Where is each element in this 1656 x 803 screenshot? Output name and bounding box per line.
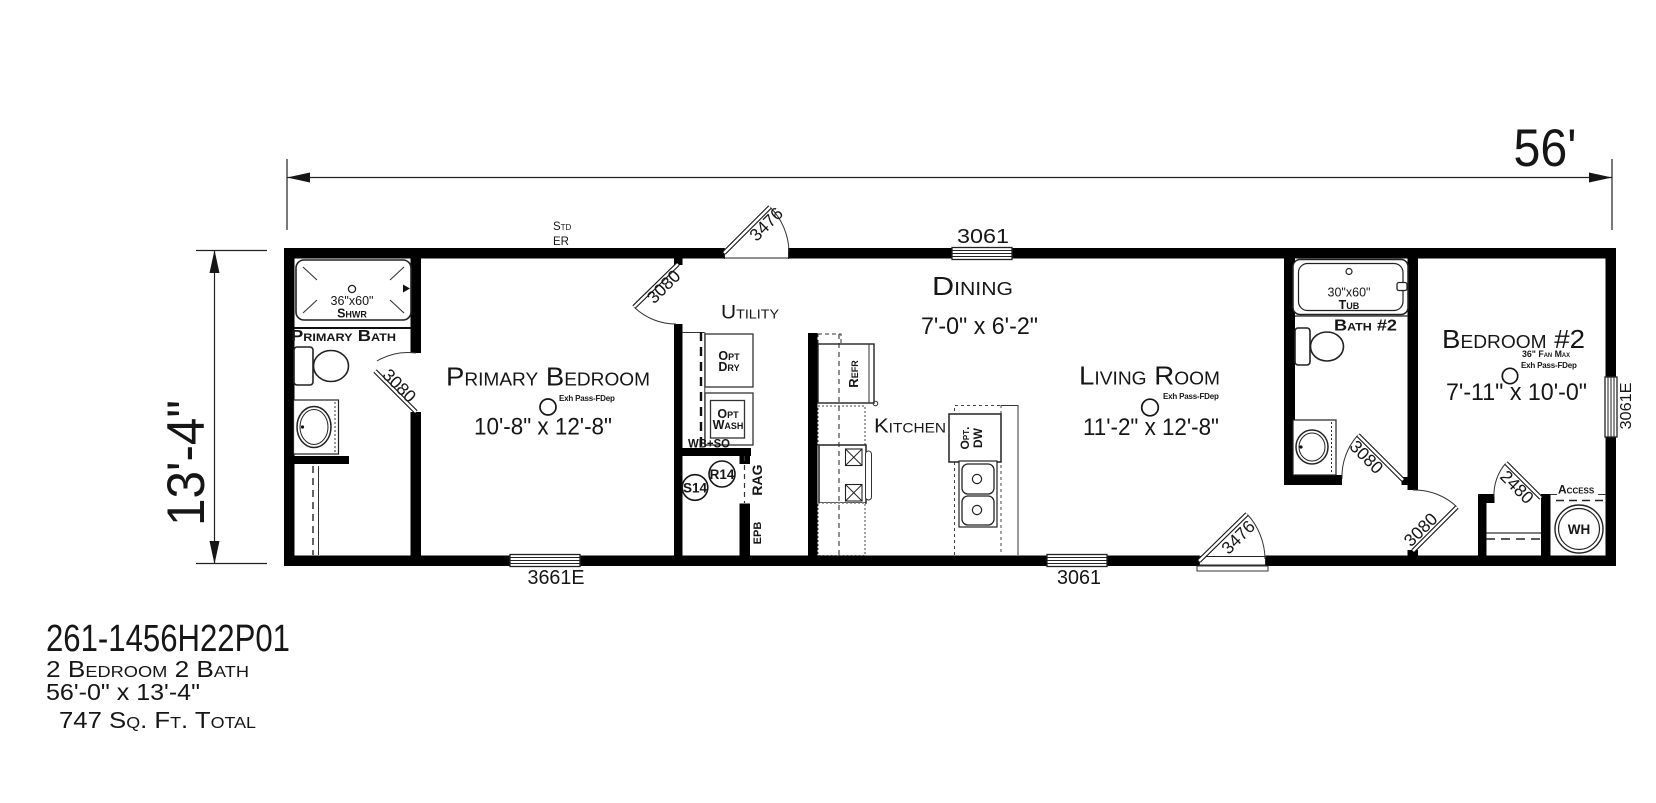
svg-text:11'-2" x 12'-8": 11'-2" x 12'-8" <box>1083 414 1219 441</box>
svg-text:3661E: 3661E <box>528 567 585 589</box>
svg-text:S14: S14 <box>683 481 708 496</box>
svg-text:3061: 3061 <box>957 226 1009 248</box>
svg-text:Exh Pass-FDep: Exh Pass-FDep <box>1163 392 1219 401</box>
svg-text:ER: ER <box>553 236 569 248</box>
svg-text:Utility: Utility <box>721 303 779 324</box>
svg-text:Refr: Refr <box>846 360 861 388</box>
svg-text:36" Fan Max: 36" Fan Max <box>1522 349 1570 359</box>
svg-text:10'-8" x 12'-8": 10'-8" x 12'-8" <box>474 414 612 441</box>
svg-text:Dry: Dry <box>718 360 739 374</box>
svg-text:Tub: Tub <box>1339 298 1360 312</box>
svg-text:3061E: 3061E <box>1618 383 1635 430</box>
svg-text:56': 56' <box>1514 119 1577 178</box>
svg-text:7'-11" x 10'-0": 7'-11" x 10'-0" <box>1446 379 1587 406</box>
svg-text:Primary Bath: Primary Bath <box>291 328 396 345</box>
svg-text:7'-0" x 6'-2": 7'-0" x 6'-2" <box>921 313 1038 340</box>
svg-text:261-1456H22P01: 261-1456H22P01 <box>46 618 290 660</box>
svg-text:Std: Std <box>553 221 572 233</box>
svg-text:3061: 3061 <box>1057 567 1101 589</box>
svg-text:Living Room: Living Room <box>1079 361 1220 391</box>
svg-text:Opt.: Opt. <box>958 427 972 450</box>
svg-text:Wash: Wash <box>713 418 744 432</box>
svg-text:Shwr: Shwr <box>337 307 367 321</box>
svg-text:Exh Pass-FDep: Exh Pass-FDep <box>559 394 615 403</box>
svg-text:WB+SO: WB+SO <box>688 439 730 451</box>
svg-text:Kitchen: Kitchen <box>874 416 946 438</box>
svg-text:WH: WH <box>1568 522 1591 537</box>
svg-text:Exh Pass-FDep: Exh Pass-FDep <box>1521 361 1577 370</box>
svg-text:RAG: RAG <box>749 464 765 495</box>
svg-text:56'-0" x 13'-4": 56'-0" x 13'-4" <box>46 679 200 705</box>
svg-text:747 Sq. Ft. Total: 747 Sq. Ft. Total <box>59 707 256 733</box>
svg-text:Access: Access <box>1558 483 1595 497</box>
svg-text:EPB: EPB <box>752 522 764 545</box>
svg-text:Bath #2: Bath #2 <box>1334 318 1397 335</box>
svg-text:13'-4": 13'-4" <box>157 400 216 526</box>
svg-text:Primary Bedroom: Primary Bedroom <box>446 362 650 392</box>
svg-text:R14: R14 <box>710 467 735 482</box>
svg-text:DW: DW <box>971 427 985 448</box>
svg-text:Dining: Dining <box>932 271 1013 301</box>
